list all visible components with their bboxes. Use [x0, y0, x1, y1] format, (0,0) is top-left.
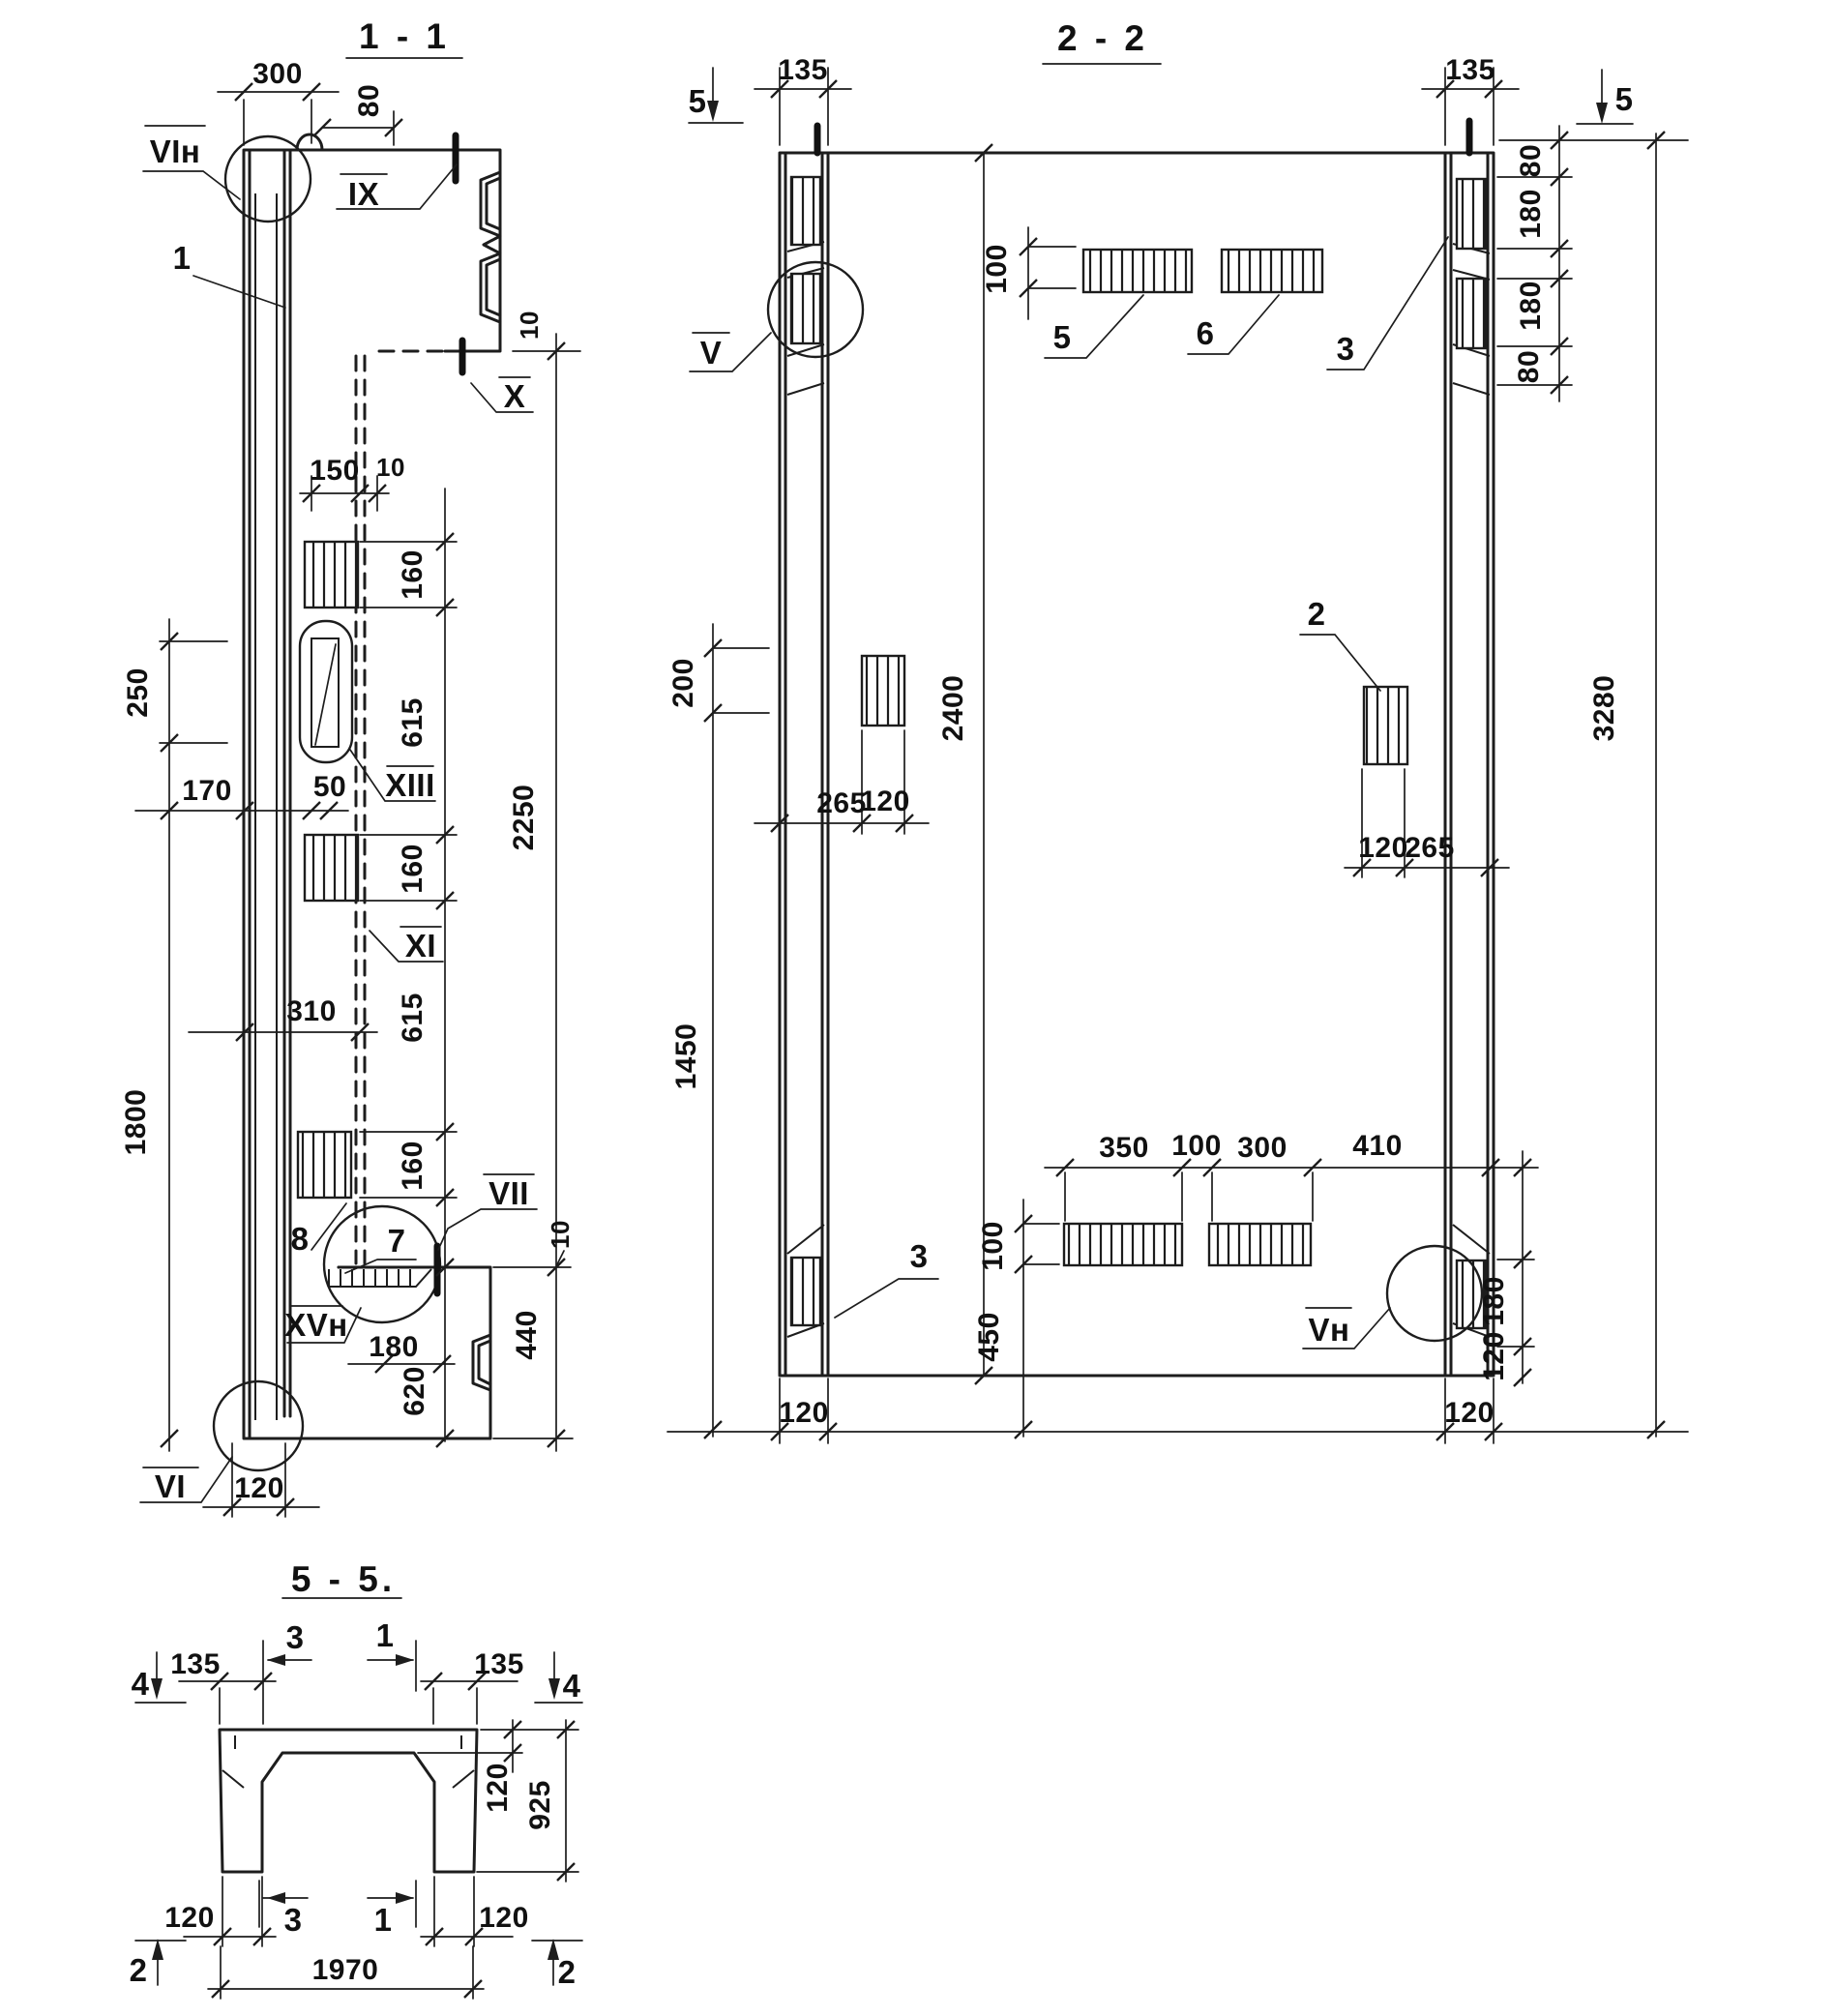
- dim-100-mid: 100: [1171, 1130, 1222, 1162]
- section-1-1: 1 - 1 300 80 10 150 10 160 615 160 615 1…: [120, 16, 580, 1517]
- dim-120-bottom-right: 120: [1444, 1397, 1495, 1429]
- embedded-plate-hatch: [298, 1132, 351, 1198]
- dim-ticks: [211, 1673, 575, 1998]
- dim-100-top: 100: [981, 244, 1013, 294]
- mark-v: V: [700, 335, 723, 371]
- section-mark-3-top: 3: [286, 1619, 305, 1655]
- embedded-plate-hatch: [305, 835, 358, 901]
- embedded-plate-hatch: [791, 1258, 820, 1325]
- dim-300-mid: 300: [1237, 1132, 1287, 1164]
- dim-10-c: 10: [546, 1220, 575, 1249]
- mark-vn: Vн: [1309, 1312, 1350, 1348]
- dim-120-slab: 120: [482, 1763, 514, 1813]
- mark-plate-3-bottom: 3: [910, 1238, 929, 1274]
- hidden-edges-dashed: [339, 351, 445, 1267]
- mark-xvn: XVн: [284, 1307, 347, 1343]
- dim-120-left: 120: [860, 786, 910, 817]
- channel-inner-marks: [222, 1735, 474, 1788]
- dim-410: 410: [1352, 1130, 1403, 1162]
- embedded-plate-hatch: [305, 542, 358, 608]
- dim-80-b: 80: [1513, 350, 1545, 383]
- slot-xiii-diagonal: [315, 644, 336, 745]
- rebar-stubs: [817, 121, 1469, 153]
- section-mark-5-right: 5: [1615, 81, 1634, 117]
- dim-50: 50: [313, 771, 346, 803]
- dim-200: 200: [667, 658, 699, 708]
- dim-250: 250: [122, 667, 154, 718]
- dim-300: 300: [252, 58, 303, 90]
- embedded-plate-hatch: [1457, 279, 1486, 348]
- dim-440: 440: [511, 1310, 543, 1360]
- mark-vii: VII: [488, 1175, 529, 1211]
- mark-xi: XI: [405, 928, 436, 964]
- mark-x: X: [504, 378, 526, 414]
- dim-180: 180: [369, 1331, 419, 1363]
- panel-edge-outline: [244, 134, 500, 1438]
- mark-plate-6: 6: [1197, 315, 1215, 351]
- mark-plate-5: 5: [1053, 319, 1072, 355]
- dim-180-right: 180: [1478, 1276, 1510, 1326]
- dim-1450: 1450: [670, 1023, 702, 1090]
- mark-1: 1: [173, 240, 192, 276]
- dim-160-c: 160: [397, 1141, 429, 1191]
- section-2-2-title: 2 - 2: [1057, 18, 1148, 58]
- dim-310: 310: [286, 995, 337, 1027]
- embedded-plate-hatch: [862, 656, 904, 726]
- dim-120: 120: [234, 1472, 284, 1504]
- dim-925: 925: [524, 1780, 556, 1830]
- dim-150: 150: [310, 455, 360, 487]
- channel-outline: [220, 1730, 477, 1872]
- dim-615-a: 615: [397, 697, 429, 748]
- section-mark-2-right: 2: [558, 1954, 577, 1990]
- dim-100-bottom: 100: [977, 1221, 1009, 1271]
- mark-vi: VI: [155, 1468, 186, 1504]
- section-5-5: 5 - 5. 135 135 120 925 120 120 1970 3 1 …: [130, 1559, 582, 1999]
- dim-450: 450: [973, 1312, 1005, 1362]
- section-mark-4-left: 4: [132, 1666, 150, 1702]
- dim-80-a: 80: [1515, 144, 1547, 177]
- detail-circle-vi: [214, 1381, 303, 1470]
- section-mark-2-left: 2: [130, 1952, 148, 1988]
- dim-615-b: 615: [397, 993, 429, 1043]
- mark-vin: VIн: [150, 133, 201, 169]
- dim-2400: 2400: [937, 675, 969, 742]
- dim-10-top: 10: [515, 311, 544, 340]
- leader-lines: [690, 237, 1448, 1349]
- dim-120-right-low: 120: [1478, 1331, 1510, 1381]
- mark-ix: IX: [348, 176, 379, 212]
- dim-180-b: 180: [1515, 281, 1547, 331]
- dim-1800: 1800: [120, 1089, 152, 1156]
- structural-drawing: 1 - 1 300 80 10 150 10 160 615 160 615 1…: [0, 0, 1835, 2016]
- section-2-2: 2 - 2 135 135 80 180 180 80 3280 100 200…: [667, 18, 1688, 1443]
- drawing-sheet: 1 - 1 300 80 10 150 10 160 615 160 615 1…: [0, 0, 1835, 2016]
- dim-120-bottom-right: 120: [479, 1902, 529, 1934]
- dim-3280: 3280: [1588, 675, 1620, 742]
- mark-plate-2: 2: [1308, 596, 1326, 632]
- dim-135-right: 135: [1445, 54, 1495, 86]
- section-mark-4-right: 4: [563, 1668, 581, 1704]
- dim-10-a: 10: [376, 453, 405, 482]
- embedded-plate-hatch: [791, 177, 820, 245]
- dim-120-right: 120: [1358, 832, 1408, 864]
- dim-120-bottom-left: 120: [164, 1902, 215, 1934]
- dim-120-bottom-left: 120: [779, 1397, 829, 1429]
- section-mark-1-bottom: 1: [374, 1902, 393, 1938]
- dim-160-b: 160: [397, 844, 429, 894]
- dim-80: 80: [353, 84, 385, 117]
- dim-1970: 1970: [312, 1954, 379, 1986]
- embedded-plate-hatch: [1209, 1224, 1311, 1265]
- section-5-5-title: 5 - 5.: [291, 1559, 396, 1599]
- rebar-lines: [255, 193, 277, 1420]
- dim-265-right: 265: [1405, 832, 1455, 864]
- embedded-plate-hatch: [1364, 687, 1407, 764]
- mark-7: 7: [388, 1223, 406, 1259]
- slot-xiii-inner: [311, 638, 339, 747]
- section-mark-3-bottom: 3: [284, 1902, 303, 1938]
- mark-xiii: XIII: [385, 767, 435, 803]
- dim-170: 170: [182, 775, 232, 807]
- dim-350: 350: [1099, 1132, 1149, 1164]
- mark-plate-3-top: 3: [1337, 331, 1355, 367]
- mark-8: 8: [291, 1221, 310, 1257]
- dim-135-right: 135: [474, 1648, 524, 1680]
- embedded-plate-hatch: [1083, 250, 1192, 292]
- dim-135-left: 135: [170, 1648, 221, 1680]
- section-mark-5-left: 5: [689, 83, 707, 119]
- section-mark-1-top: 1: [376, 1617, 395, 1653]
- embedded-plate-hatch: [1222, 250, 1322, 292]
- embedded-plate-hatch: [1064, 1224, 1182, 1265]
- embedded-plate-hatch: [1457, 179, 1486, 249]
- section-1-1-title: 1 - 1: [359, 16, 450, 56]
- dim-160-a: 160: [397, 549, 429, 600]
- dim-620: 620: [399, 1366, 430, 1416]
- dim-135-left: 135: [778, 54, 828, 86]
- detail-circle-7: [324, 1206, 440, 1322]
- dim-265-left: 265: [816, 787, 867, 819]
- dim-180-a: 180: [1515, 189, 1547, 239]
- weld-ledge-detail: [329, 1269, 431, 1287]
- dim-2250: 2250: [508, 785, 540, 851]
- embedded-plate-hatch: [791, 274, 820, 343]
- weld-marks: [437, 135, 462, 1293]
